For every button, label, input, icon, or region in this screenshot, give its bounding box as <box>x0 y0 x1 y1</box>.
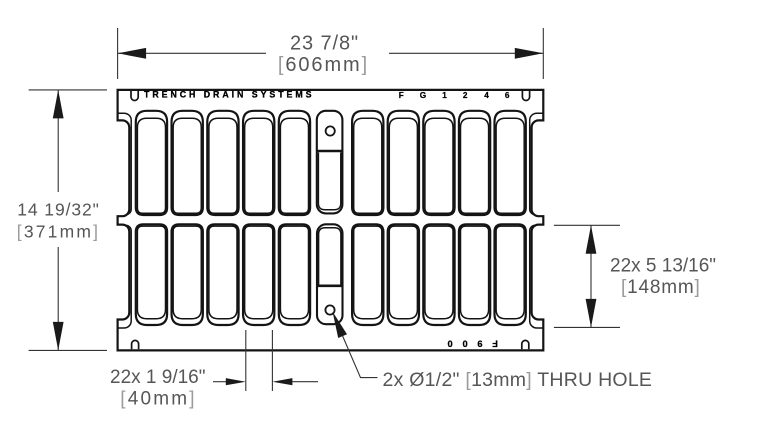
svg-text:2x Ø1/2" [13mm] THRU HOLE: 2x Ø1/2" [13mm] THRU HOLE <box>383 369 653 391</box>
svg-text:G: G <box>420 91 426 100</box>
svg-text:6: 6 <box>505 91 510 100</box>
svg-text:22x 5 13/16": 22x 5 13/16" <box>610 256 716 277</box>
svg-text:23 7/8": 23 7/8" <box>290 33 359 55</box>
svg-text:2: 2 <box>463 91 468 100</box>
svg-text:[606mm]: [606mm] <box>278 54 369 76</box>
svg-text:[40mm]: [40mm] <box>120 389 197 410</box>
svg-text:F900: F900 <box>438 339 498 349</box>
svg-text:22x 1 9/16": 22x 1 9/16" <box>110 367 205 388</box>
svg-text:1: 1 <box>442 91 447 100</box>
svg-text:F: F <box>399 91 404 100</box>
svg-text:[371mm]: [371mm] <box>17 221 100 241</box>
svg-text:[148mm]: [148mm] <box>621 277 701 298</box>
svg-text:4: 4 <box>484 91 489 100</box>
svg-text:14 19/32": 14 19/32" <box>17 199 99 219</box>
